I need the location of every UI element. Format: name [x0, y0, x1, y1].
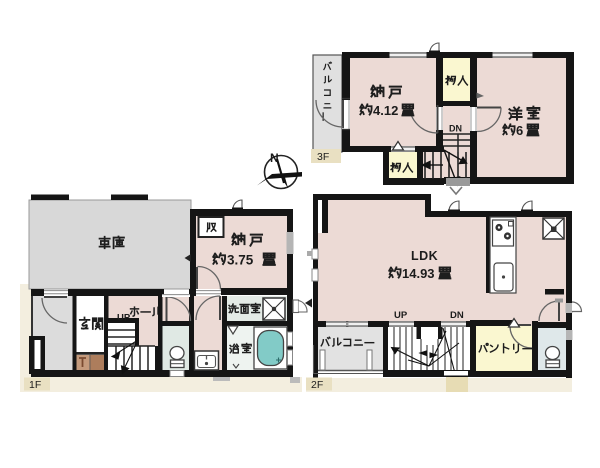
svg-text:DN: DN	[450, 310, 464, 321]
svg-text:LDK: LDK	[411, 249, 438, 263]
svg-text:2F: 2F	[311, 379, 323, 391]
svg-text:DN: DN	[449, 124, 462, 134]
svg-text:UP: UP	[117, 313, 131, 324]
svg-text:3.75: 3.75	[227, 253, 254, 268]
svg-text:4.12: 4.12	[373, 103, 398, 118]
svg-text:6: 6	[516, 123, 523, 138]
svg-text:14.93: 14.93	[402, 266, 435, 281]
svg-text:3F: 3F	[317, 151, 329, 163]
svg-text:UP: UP	[394, 310, 408, 321]
svg-text:1F: 1F	[29, 379, 41, 391]
